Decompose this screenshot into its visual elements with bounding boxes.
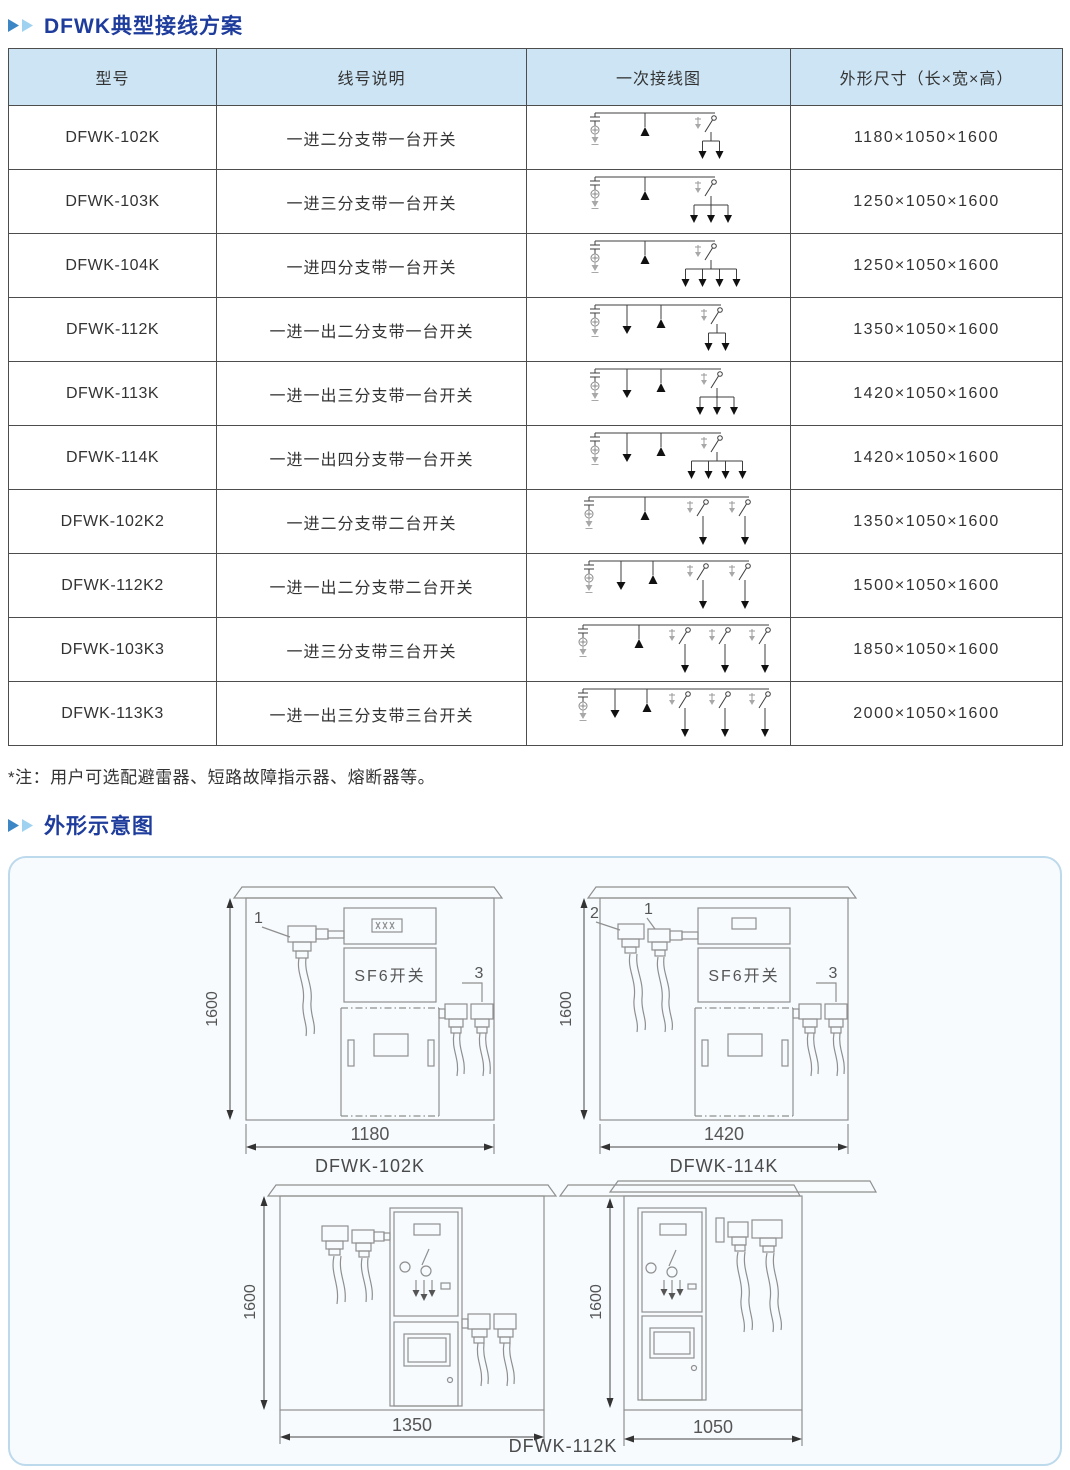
one-line-diagram (527, 170, 793, 228)
double-arrow-icon (8, 18, 35, 33)
height-dimension-label: 1600 (242, 1284, 259, 1320)
sf6-switch-label: SF6开关 (708, 967, 779, 985)
meter-window (404, 1334, 450, 1366)
one-line-diagram (527, 618, 793, 676)
cabinet-body (280, 1196, 544, 1410)
model-cell: DFWK-103K (9, 170, 217, 234)
diagram-cell (527, 106, 791, 170)
header-model: 型号 (9, 49, 217, 106)
cabinet-roof (588, 887, 856, 898)
cable-connector (728, 1222, 748, 1237)
model-cell: DFWK-104K (9, 234, 217, 298)
height-dimension-label: 1600 (204, 991, 221, 1027)
section1-title-text: DFWK典型接线方案 (44, 10, 243, 40)
callout-3: 3 (829, 965, 838, 982)
diagram-cell (527, 170, 791, 234)
table-row: DFWK-114K一进一出四分支带一台开关1420×1050×1600 (9, 426, 1063, 490)
incoming-cable-connector (352, 1230, 374, 1243)
table-row: DFWK-103K一进三分支带一台开关1250×1050×1600 (9, 170, 1063, 234)
width-dimension-label: 1050 (693, 1417, 733, 1437)
dimensions-cell: 1250×1050×1600 (791, 170, 1063, 234)
callout-3: 3 (475, 965, 484, 982)
outgoing-cable-connector (468, 1314, 490, 1329)
incoming-cable-connector (322, 1226, 348, 1241)
diagram-cell (527, 618, 791, 682)
cabinet-roof (610, 1181, 876, 1192)
dimensions-cell: 1250×1050×1600 (791, 234, 1063, 298)
model-cell: DFWK-114K (9, 426, 217, 490)
switch-unit-panel (638, 1208, 706, 1400)
table-row: DFWK-112K一进一出二分支带一台开关1350×1050×1600 (9, 298, 1063, 362)
cabinet-drawing-dfwk-112k-front: 1600 (238, 1170, 568, 1460)
model-cell: DFWK-113K (9, 362, 217, 426)
model-cell: DFWK-103K3 (9, 618, 217, 682)
table-row: DFWK-102K2一进二分支带二台开关1350×1050×1600 (9, 490, 1063, 554)
cabinet-body (600, 898, 848, 1120)
description-cell: 一进二分支带一台开关 (217, 106, 527, 170)
cabinet-roof (560, 1185, 800, 1196)
outline-panel: 1600 SF6开关 1 3 (8, 856, 1062, 1466)
header-diagram: 一次接线图 (527, 49, 791, 106)
dimensions-cell: 1350×1050×1600 (791, 490, 1063, 554)
model-cell: DFWK-112K2 (9, 554, 217, 618)
description-cell: 一进一出三分支带三台开关 (217, 682, 527, 746)
callout-2: 2 (590, 905, 599, 922)
diagram-cell (527, 362, 791, 426)
door-handle (374, 1034, 408, 1056)
model-cell: DFWK-102K (9, 106, 217, 170)
cabinet-roof (234, 887, 502, 898)
cabinet-drawing-dfwk-114k: 1600 SF6开关 2 1 (546, 874, 876, 1176)
wiring-scheme-table: 型号 线号说明 一次接线图 外形尺寸（长×宽×高） DFWK-102K一进二分支… (8, 48, 1063, 746)
dimensions-cell: 1500×1050×1600 (791, 554, 1063, 618)
outgoing-cable-connector (471, 1004, 493, 1019)
cabinet-body (624, 1196, 802, 1410)
drawing-caption-dfwk-112k: DFWK-112K (509, 1436, 618, 1457)
table-row: DFWK-103K3一进三分支带三台开关1850×1050×1600 (9, 618, 1063, 682)
arrow-dark-icon (8, 819, 19, 832)
diagram-cell (527, 682, 791, 746)
footnote: *注：用户可选配避雷器、短路故障指示器、熔断器等。 (8, 763, 1070, 788)
incoming-cable-connector (288, 926, 316, 942)
description-cell: 一进一出四分支带一台开关 (217, 426, 527, 490)
section2-title-text: 外形示意图 (44, 810, 154, 840)
one-line-diagram (527, 106, 793, 164)
arrow-dark-icon (8, 19, 19, 32)
description-cell: 一进一出二分支带二台开关 (217, 554, 527, 618)
model-cell: DFWK-102K2 (9, 490, 217, 554)
table-row: DFWK-113K3一进一出三分支带三台开关2000×1050×1600 (9, 682, 1063, 746)
diagram-cell (527, 234, 791, 298)
cabinet-body (246, 898, 494, 1120)
description-cell: 一进二分支带二台开关 (217, 490, 527, 554)
outgoing-cable-connector (445, 1004, 467, 1019)
cabinet-drawing-dfwk-112k-side: 1600 1050 (552, 1164, 882, 1470)
outgoing-cable-connector (825, 1004, 847, 1019)
one-line-diagram (527, 682, 793, 740)
description-cell: 一进四分支带一台开关 (217, 234, 527, 298)
header-dimensions: 外形尺寸（长×宽×高） (791, 49, 1063, 106)
door-handle (728, 1034, 762, 1056)
double-arrow-icon (8, 818, 35, 833)
one-line-diagram (527, 426, 793, 484)
diagram-cell (527, 490, 791, 554)
section-title-outline: 外形示意图 (8, 810, 1070, 840)
one-line-diagram (527, 490, 793, 548)
table-row: DFWK-113K一进一出三分支带一台开关1420×1050×1600 (9, 362, 1063, 426)
table-row: DFWK-112K2一进一出二分支带二台开关1500×1050×1600 (9, 554, 1063, 618)
diagram-cell (527, 426, 791, 490)
section-title-wiring: DFWK典型接线方案 (8, 10, 1070, 40)
one-line-diagram (527, 298, 793, 356)
arrow-light-icon (22, 19, 33, 32)
cabinet-roof (268, 1185, 556, 1196)
table-header-row: 型号 线号说明 一次接线图 外形尺寸（长×宽×高） (9, 49, 1063, 106)
dimensions-cell: 2000×1050×1600 (791, 682, 1063, 746)
dimensions-cell: 1180×1050×1600 (791, 106, 1063, 170)
cable-connector (752, 1220, 782, 1238)
diagram-cell (527, 298, 791, 362)
description-cell: 一进三分支带一台开关 (217, 170, 527, 234)
arrow-light-icon (22, 819, 33, 832)
incoming-cable-connector (618, 924, 644, 939)
table-row: DFWK-104K一进四分支带一台开关1250×1050×1600 (9, 234, 1063, 298)
model-cell: DFWK-112K (9, 298, 217, 362)
description-cell: 一进三分支带三台开关 (217, 618, 527, 682)
callout-1: 1 (254, 910, 263, 927)
switch-unit-panel (390, 1208, 462, 1406)
outgoing-cable-connector (799, 1004, 821, 1019)
height-dimension-label: 1600 (588, 1284, 605, 1320)
model-cell: DFWK-113K3 (9, 682, 217, 746)
height-dimension-label: 1600 (558, 991, 575, 1027)
incoming-cable-connector (648, 929, 670, 942)
callout-1: 1 (644, 901, 653, 918)
dimensions-cell: 1350×1050×1600 (791, 298, 1063, 362)
dimensions-cell: 1850×1050×1600 (791, 618, 1063, 682)
width-dimension-label: 1350 (392, 1415, 432, 1435)
one-line-diagram (527, 362, 793, 420)
description-cell: 一进一出三分支带一台开关 (217, 362, 527, 426)
one-line-diagram (527, 234, 793, 292)
header-description: 线号说明 (217, 49, 527, 106)
description-cell: 一进一出二分支带一台开关 (217, 298, 527, 362)
sf6-switch-label: SF6开关 (354, 967, 425, 985)
one-line-diagram (527, 554, 793, 612)
diagram-cell (527, 554, 791, 618)
table-row: DFWK-102K一进二分支带一台开关1180×1050×1600 (9, 106, 1063, 170)
cabinet-drawing-dfwk-102k: 1600 SF6开关 1 3 (192, 874, 522, 1176)
dimensions-cell: 1420×1050×1600 (791, 426, 1063, 490)
width-dimension-label: 1420 (704, 1124, 744, 1144)
outgoing-cable-connector (494, 1314, 516, 1329)
dimensions-cell: 1420×1050×1600 (791, 362, 1063, 426)
width-dimension-label: 1180 (351, 1124, 390, 1144)
